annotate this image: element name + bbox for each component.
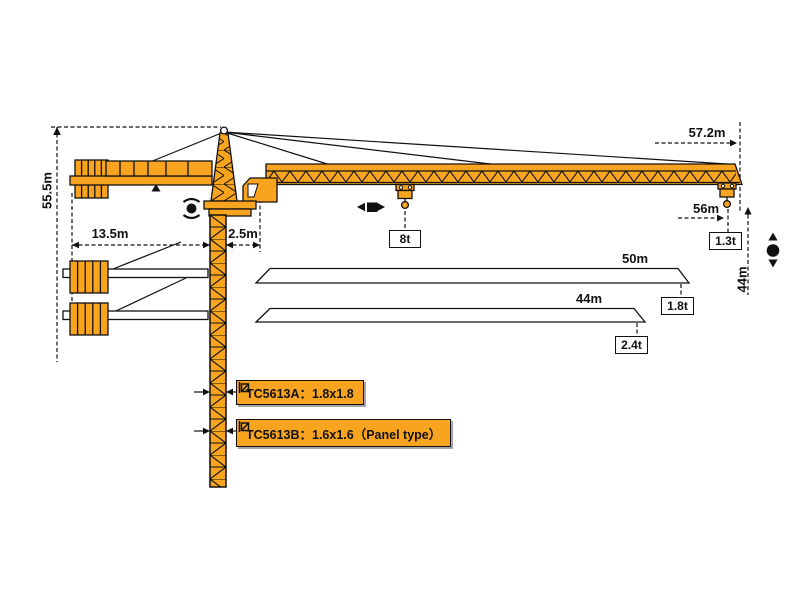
trolley-wheel: [730, 184, 733, 187]
jib-tie-3: [224, 132, 727, 164]
mast-option-b-label: TC5613B：1.6x1.6（Panel type）: [236, 419, 451, 447]
ballast2-leader: [116, 278, 186, 311]
trolley-wheel: [721, 184, 724, 187]
counterjib-panels: [106, 161, 212, 176]
counterjib: [70, 160, 212, 198]
hook-height-arrow: [744, 207, 751, 215]
ballast1-leader: [113, 242, 181, 269]
tie-rods: [150, 132, 727, 167]
turntable: [204, 201, 256, 216]
trolley-travel-icon: [357, 203, 385, 213]
jib-overall-arrow: [730, 140, 737, 147]
height-top-arrow: [53, 127, 61, 135]
jib-option-bars: [256, 269, 689, 323]
jib50-tip-load-badge: 1.8t: [661, 297, 694, 315]
trolley-wheel: [399, 186, 402, 189]
counterjib-radius-label: 13.5m: [78, 226, 142, 241]
jib-tie-1: [224, 132, 337, 167]
apex-pin: [221, 127, 228, 134]
jib-option-50m-bar: [256, 269, 689, 284]
jib: [266, 164, 742, 185]
hook: [724, 201, 731, 208]
jib-tie-2: [224, 132, 507, 166]
counterjib-left-arrow: [72, 242, 79, 249]
hook-height-label: 44m: [735, 250, 750, 310]
jib-option-44m-bar: [256, 309, 645, 323]
hook: [402, 202, 409, 209]
max-load-badge: 8t: [389, 230, 421, 248]
jib-option-44m-label: 44m: [567, 291, 611, 306]
hoisting-icon: [767, 233, 780, 268]
ballast2-weights: [70, 303, 108, 335]
trolley-block: [398, 191, 412, 199]
slewing-rotation-icon: [184, 199, 200, 218]
mast-lattice: [210, 215, 226, 487]
rear-offset-label: 2.5m: [221, 226, 265, 241]
offset-right-arrow: [253, 242, 260, 249]
trolley-wheel: [408, 186, 411, 189]
tower-height-label: 55.5m: [40, 158, 55, 224]
tip-load-badge: 1.3t: [709, 232, 742, 250]
jib-option-50m-label: 50m: [613, 251, 657, 266]
hook-height-value: 44m: [735, 266, 750, 292]
jib44-tip-load-badge: 2.4t: [615, 336, 648, 354]
counterjib-beam: [70, 176, 212, 185]
mast-option-a-text: TC5613A：1.8x1.8: [246, 383, 354, 402]
tower-head: [211, 127, 237, 201]
slewing-platform: [204, 201, 256, 209]
tower-height-value: 55.5m: [40, 172, 55, 209]
trolley-main: [396, 185, 414, 209]
ballast-options: [63, 261, 208, 335]
counterjib-tie: [150, 132, 224, 162]
trolley-block: [720, 189, 734, 197]
mast-section-icon: [237, 381, 250, 394]
cab: [243, 178, 277, 202]
counterjib-right-arrow: [203, 242, 210, 249]
jib-lattice: [266, 171, 736, 183]
tower-mast: [210, 215, 226, 487]
mast-option-b-text: TC5613B：1.6x1.6（Panel type）: [246, 424, 441, 443]
mast-option-a-label: TC5613A：1.8x1.8: [236, 380, 364, 405]
max-radius-label: 56m: [688, 201, 724, 216]
mast-section-icon: [237, 420, 250, 433]
jib-overall-label: 57.2m: [677, 125, 737, 140]
ballast1-weights: [70, 261, 108, 293]
crane-load-diagram: 55.5m 13.5m 2.5m 57.2m 56m 44m 50m 44m 8…: [0, 0, 800, 600]
offset-left-arrow: [226, 242, 233, 249]
